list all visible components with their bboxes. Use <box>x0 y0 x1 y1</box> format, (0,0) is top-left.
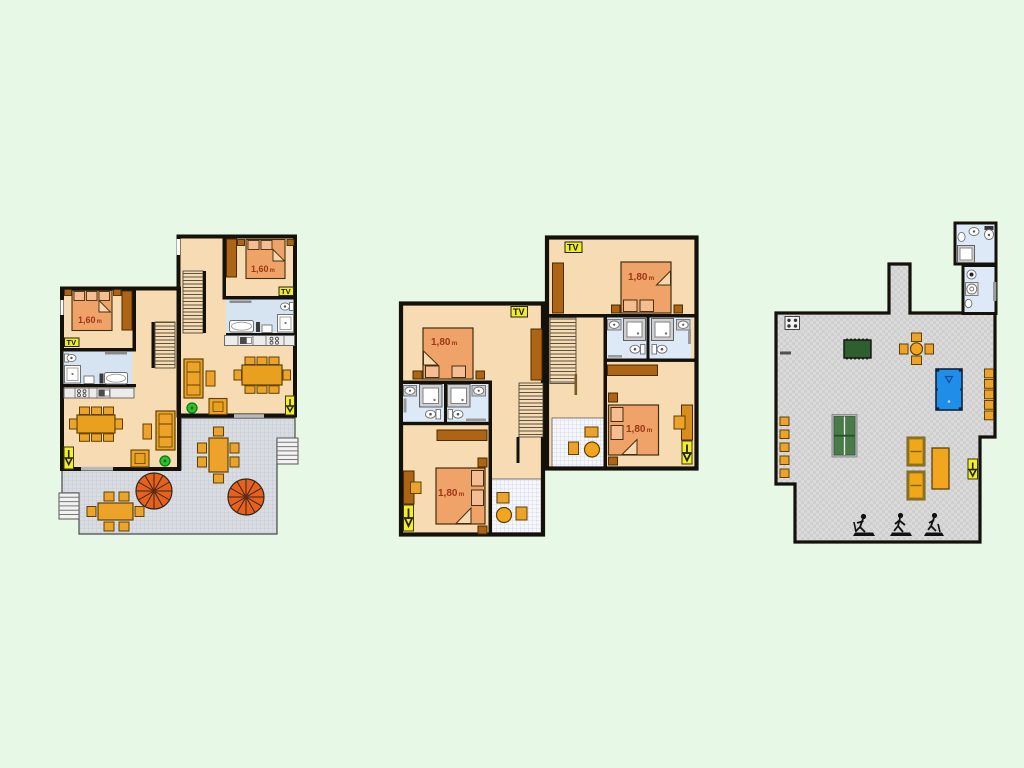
svg-text:TV: TV <box>67 338 77 347</box>
svg-text:TV: TV <box>281 287 291 296</box>
svg-text:TV: TV <box>513 307 525 317</box>
svg-text:TV: TV <box>567 243 579 253</box>
